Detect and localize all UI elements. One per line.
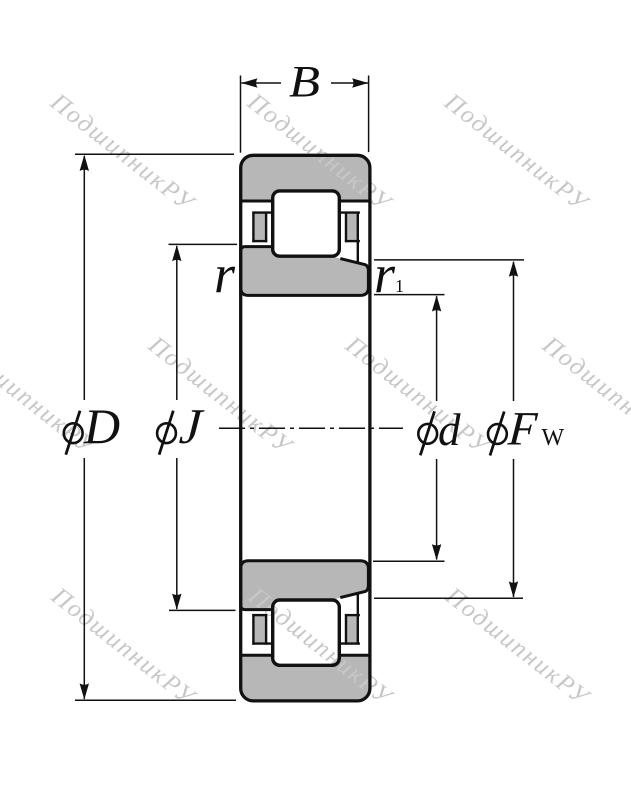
- svg-text:1: 1: [395, 276, 404, 296]
- svg-text:F: F: [503, 402, 543, 455]
- svg-text:J: J: [175, 399, 208, 454]
- svg-text:r: r: [374, 244, 396, 304]
- svg-text:D: D: [83, 398, 120, 454]
- svg-text:r: r: [214, 244, 236, 304]
- svg-text:W: W: [542, 425, 565, 451]
- svg-text:d: d: [438, 405, 461, 455]
- svg-text:B: B: [289, 57, 320, 106]
